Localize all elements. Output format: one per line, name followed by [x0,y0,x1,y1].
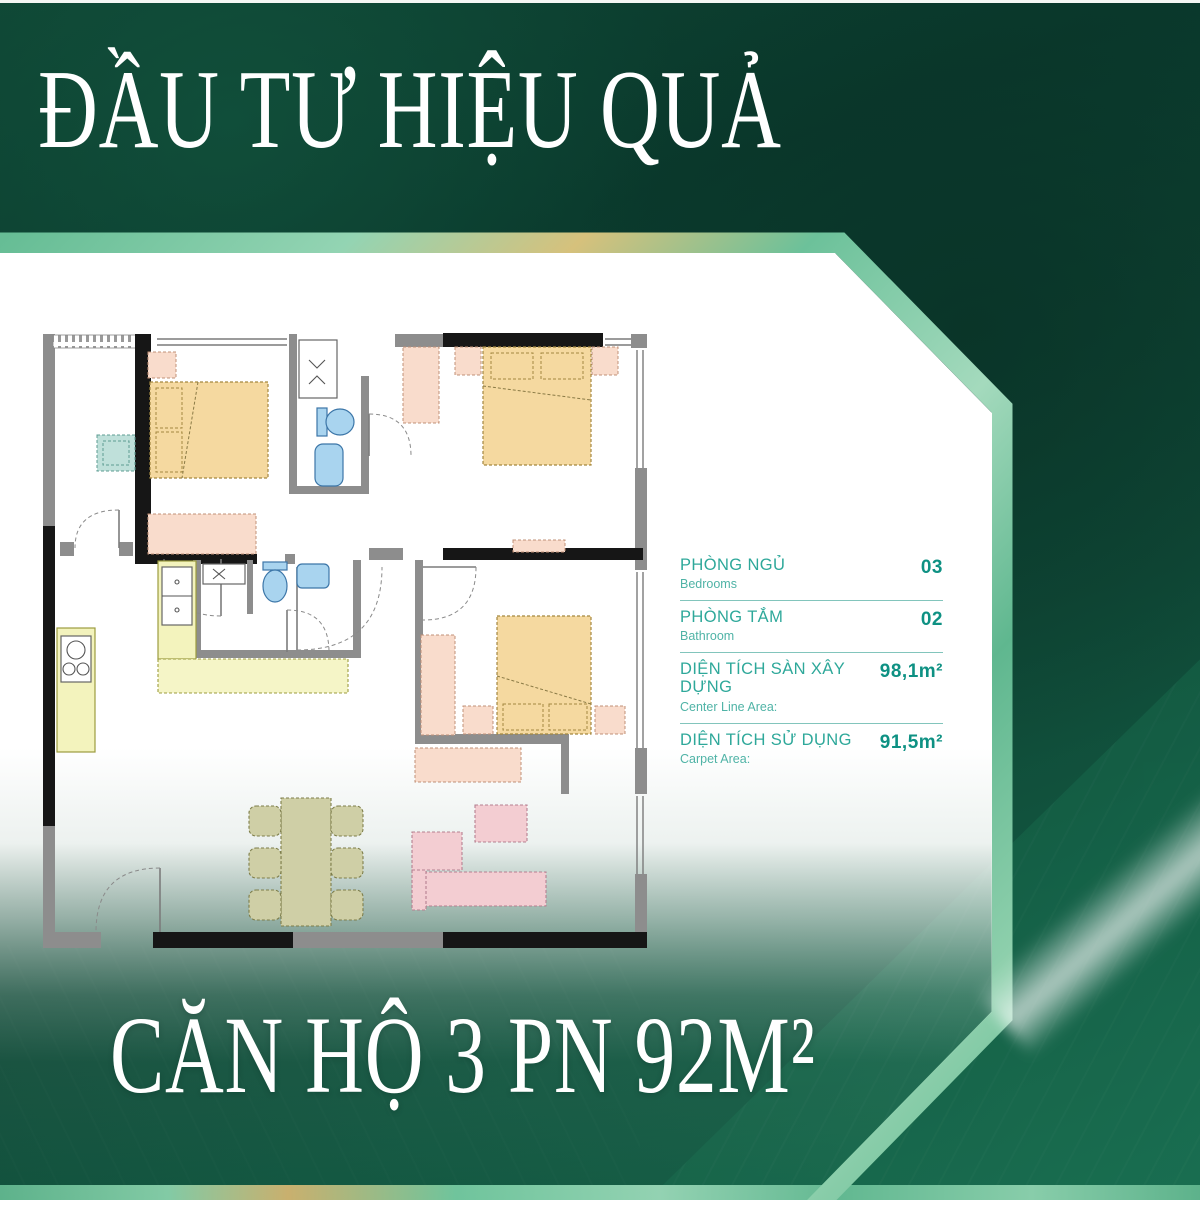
spec-row-bedrooms: PHÒNG NGỦ Bedrooms 03 [680,549,943,601]
bottom-border-line [0,1200,1200,1205]
spec-sublabel: Bathroom [680,629,783,643]
headline-top: ĐẦU TƯ HIỆU QUẢ [38,46,782,175]
spec-label: PHÒNG NGỦ [680,556,785,574]
dining-set [249,798,363,926]
spec-value: 91,5m² [880,731,943,754]
floor-plan [35,320,660,965]
spec-text: PHÒNG TẮM Bathroom [680,608,783,643]
spec-row-centerline-area: DIỆN TÍCH SÀN XÂY DỰNG Center Line Area:… [680,653,943,723]
spec-label: DIỆN TÍCH SÀN XÂY DỰNG [680,660,880,696]
spec-text: DIỆN TÍCH SÀN XÂY DỰNG Center Line Area: [680,660,880,713]
spec-label: PHÒNG TẮM [680,608,783,626]
bedroom-1-furniture [97,352,268,554]
spec-row-carpet-area: DIỆN TÍCH SỬ DỤNG Carpet Area: 91,5m² [680,724,943,775]
spec-sublabel: Bedrooms [680,577,785,591]
top-border-line [0,0,1200,3]
spec-label: DIỆN TÍCH SỬ DỤNG [680,731,852,749]
spec-sublabel: Carpet Area: [680,752,852,766]
bedroom-2-furniture [403,347,618,552]
headline-bottom: CĂN HỘ 3 PN 92M² [110,992,816,1119]
specs-panel: PHÒNG NGỦ Bedrooms 03 PHÒNG TẮM Bathroom… [680,549,943,775]
poster: ĐẦU TƯ HIỆU QUẢ [0,0,1200,1205]
bathroom-1-fixtures [299,340,354,486]
spec-row-bathrooms: PHÒNG TẮM Bathroom 02 [680,601,943,653]
spec-text: DIỆN TÍCH SỬ DỤNG Carpet Area: [680,731,852,766]
spec-text: PHÒNG NGỦ Bedrooms [680,556,785,591]
spec-value: 98,1m² [880,660,943,683]
spec-value: 02 [921,608,943,631]
sofa-set [412,805,546,910]
bathroom-2-fixtures [203,562,329,602]
spec-sublabel: Center Line Area: [680,700,880,714]
spec-value: 03 [921,556,943,579]
bedroom-3-furniture [415,616,625,782]
